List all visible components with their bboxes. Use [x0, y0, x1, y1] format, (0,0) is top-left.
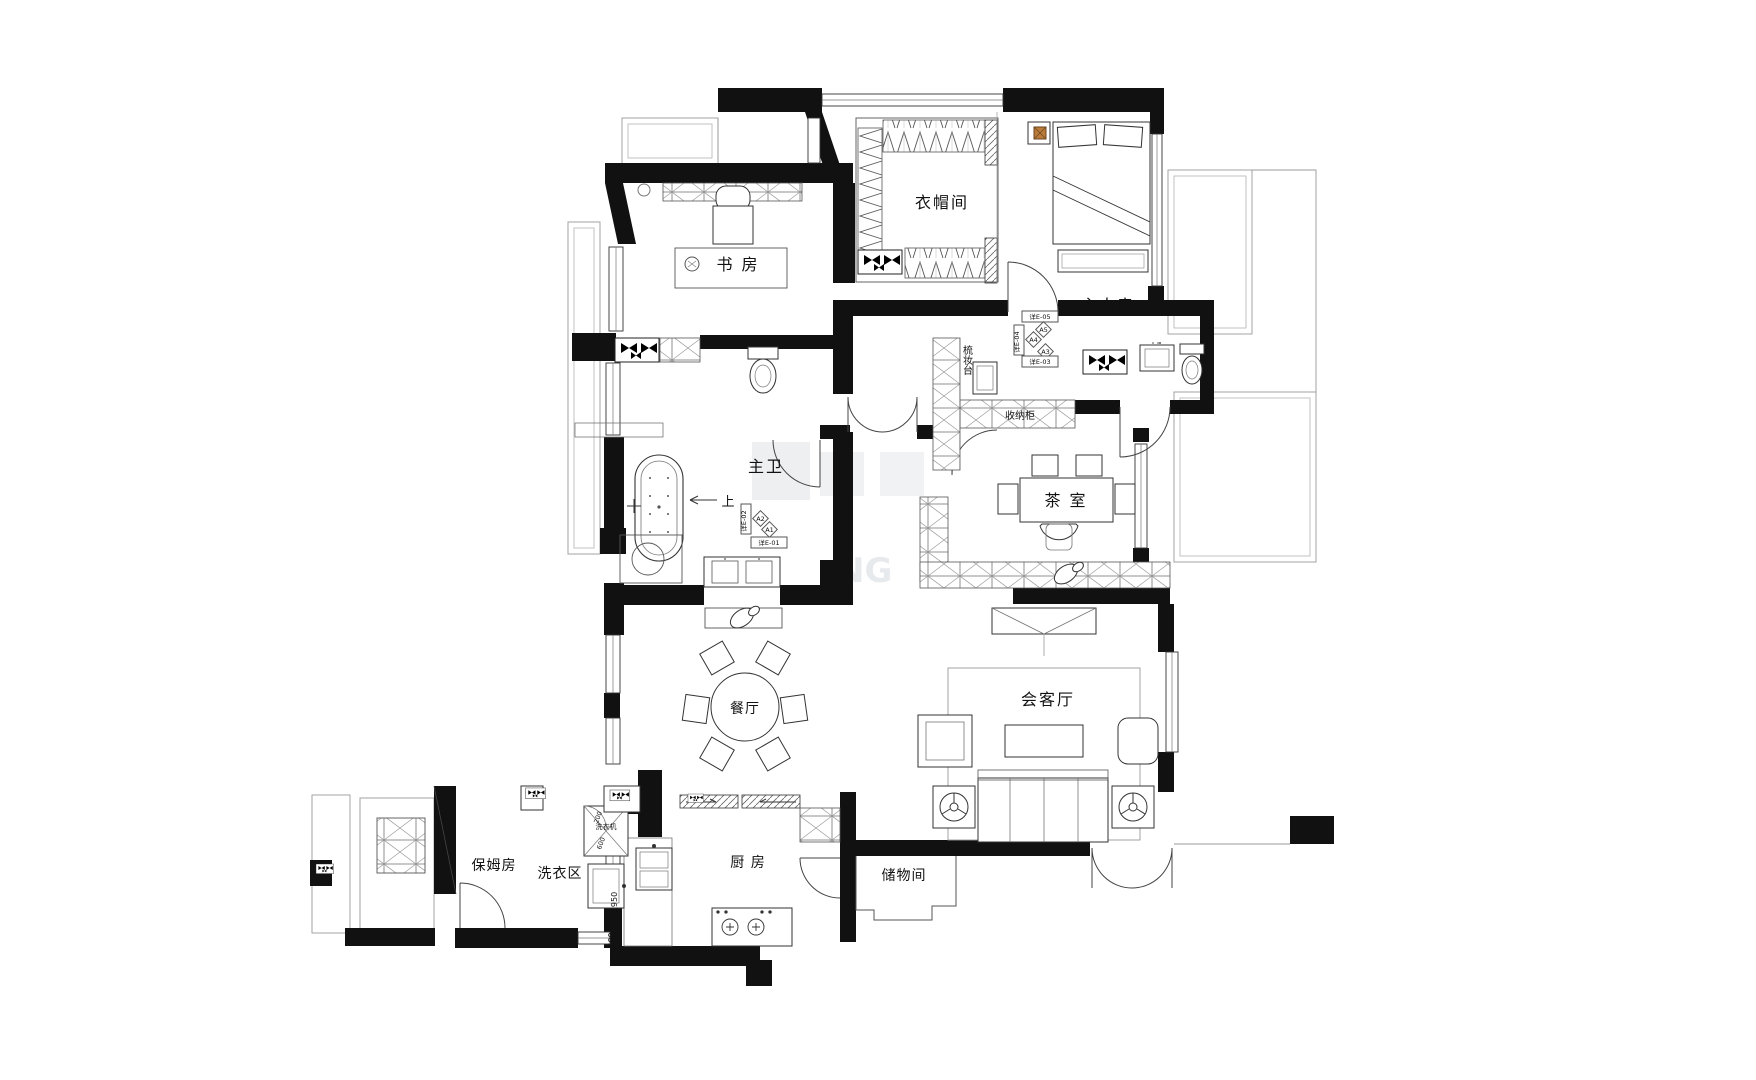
floor-plan-page: NG	[0, 0, 1756, 1080]
marker-a3: A3	[1041, 348, 1050, 356]
marker-a2: A2	[756, 515, 765, 523]
socket-icon	[610, 790, 630, 801]
room-label-dining: 餐厅	[730, 701, 760, 717]
kitchen-sink	[636, 848, 672, 890]
room-label-laundry: 洗衣区	[538, 866, 583, 882]
room-label-master-bath: 主卫	[748, 457, 784, 476]
entry-double-door	[1092, 848, 1172, 888]
closet-jamb-top	[985, 120, 997, 165]
marker-e05: 详E-05	[1029, 312, 1050, 321]
room-label-living: 会客厅	[1021, 690, 1075, 709]
kitchen-ne-cabinet	[800, 808, 840, 842]
room-label-cloakroom: 衣帽间	[915, 193, 969, 212]
dim-500: 500	[607, 932, 616, 947]
dining-furniture	[682, 604, 807, 771]
socket-icon	[688, 794, 703, 802]
ensuite-fittings	[1140, 342, 1204, 384]
room-label-study: 书 房	[716, 255, 759, 274]
storage-room-outline	[856, 856, 956, 920]
room-label-tea: 茶 室	[1044, 491, 1087, 510]
room-label-master: 主人房	[1081, 296, 1135, 315]
socket-icon	[526, 788, 546, 799]
coffee-table	[1005, 725, 1083, 757]
socket-icon	[1083, 350, 1127, 374]
marker-e04: 详E-04	[1012, 331, 1021, 352]
master-bed	[1028, 122, 1150, 272]
side-chair	[1118, 718, 1158, 764]
downlight-icon	[638, 184, 650, 196]
master-bedroom-door	[1008, 262, 1058, 312]
dim-1950: 1950	[610, 892, 619, 912]
room-label-nanny: 保姆房	[472, 858, 517, 874]
room-label-kitchen: 厨 房	[730, 855, 765, 871]
marker-a4: A4	[1029, 336, 1038, 344]
lamp-table-left-icon	[933, 786, 975, 828]
kitchen-fittings	[624, 838, 792, 946]
floor-plan-drawing: NG	[0, 0, 1756, 1080]
label-storage-cabinet: 收纳柜	[1005, 409, 1035, 422]
marker-a5: A5	[1039, 326, 1048, 334]
bath-north-cabinet	[660, 338, 700, 362]
laundry-fittings	[434, 786, 640, 908]
socket-icon	[858, 250, 902, 274]
toilet-bowl	[750, 359, 776, 393]
marker-a1: A1	[765, 526, 774, 534]
sofa	[978, 778, 1108, 842]
marker-e01: 详E-01	[758, 538, 779, 547]
tv-console	[992, 608, 1096, 634]
label-dressing-table: 梳妆台	[961, 344, 973, 376]
dressing-stool	[973, 362, 997, 394]
lamp-table-right-icon	[1112, 786, 1154, 828]
dressing-cabinet-column	[933, 338, 960, 470]
marker-e03: 详E-03	[1029, 357, 1050, 366]
closet-jamb-bottom	[985, 238, 997, 283]
dressing-area	[973, 362, 997, 394]
living-furniture	[918, 608, 1158, 842]
elevator-shaft	[377, 818, 425, 873]
up-arrow	[690, 496, 717, 504]
marker-e02: 详E-02	[739, 510, 748, 531]
label-up: 上	[721, 495, 734, 510]
living-north-cabinet	[920, 562, 1170, 588]
socket-icon	[316, 864, 334, 874]
kitchen-storage-door	[800, 858, 840, 898]
socket-icon	[615, 338, 659, 362]
hall-double-door	[848, 397, 917, 432]
toilet-tank	[748, 347, 778, 359]
nanny-door	[460, 883, 505, 928]
room-label-storage: 储物间	[882, 868, 927, 884]
